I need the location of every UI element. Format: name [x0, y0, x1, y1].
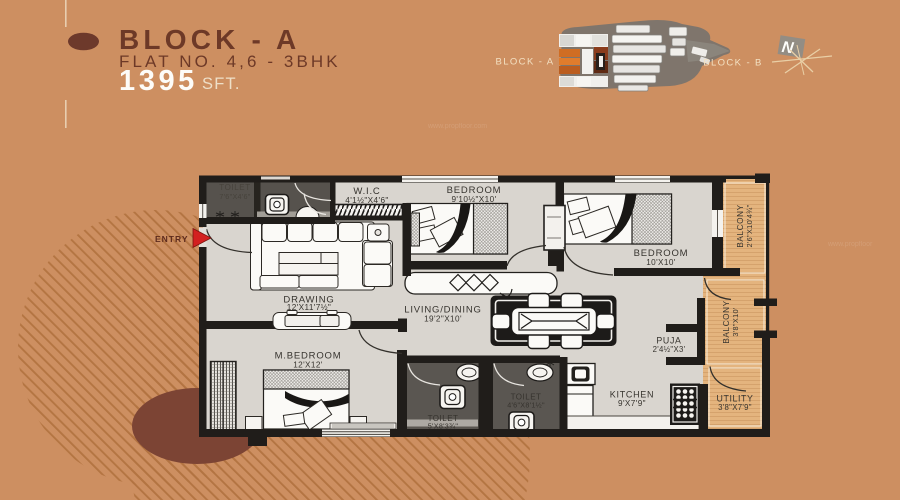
svg-text:9'X7'9": 9'X7'9" — [618, 399, 646, 408]
svg-text:www.propfloor: www.propfloor — [827, 241, 873, 248]
svg-text:4'6"X8'1½": 4'6"X8'1½" — [507, 401, 545, 410]
svg-text:BLOCK - A: BLOCK - A — [119, 24, 300, 55]
svg-text:KITCHEN: KITCHEN — [610, 390, 654, 400]
svg-text:3'8"X7'9": 3'8"X7'9" — [718, 403, 752, 412]
svg-text:ENTRY: ENTRY — [155, 234, 189, 244]
svg-text:TOILET: TOILET — [219, 183, 250, 192]
svg-text:BALCONY: BALCONY — [736, 204, 745, 247]
svg-text:BLOCK - B: BLOCK - B — [703, 58, 763, 69]
svg-text:5'X8'3¾": 5'X8'3¾" — [428, 422, 459, 431]
svg-text:9'10½"X10': 9'10½"X10' — [451, 195, 496, 204]
svg-text:19'2"X10': 19'2"X10' — [424, 315, 462, 324]
svg-text:BALCONY: BALCONY — [722, 300, 731, 343]
svg-text:www.propfloor.com: www.propfloor.com — [427, 123, 487, 130]
svg-text:BLOCK - A: BLOCK - A — [495, 57, 554, 68]
svg-text:7'6"X4'6": 7'6"X4'6" — [219, 192, 250, 201]
svg-text:10'X10': 10'X10' — [646, 258, 676, 267]
svg-text:1395: 1395 — [119, 65, 198, 97]
svg-text:12'X11'7½": 12'X11'7½" — [287, 303, 331, 312]
svg-text:3'8"X10': 3'8"X10' — [731, 307, 740, 337]
svg-text:4'1½"X4'6": 4'1½"X4'6" — [345, 196, 388, 205]
svg-text:2'4½"X3': 2'4½"X3' — [653, 345, 686, 354]
svg-text:UTILITY: UTILITY — [717, 394, 754, 404]
svg-text:PUJA: PUJA — [656, 336, 681, 346]
svg-text:SFT.: SFT. — [202, 75, 241, 93]
svg-text:2'6"X10'4¾": 2'6"X10'4¾" — [745, 204, 754, 247]
svg-text:12'X12': 12'X12' — [293, 361, 323, 370]
